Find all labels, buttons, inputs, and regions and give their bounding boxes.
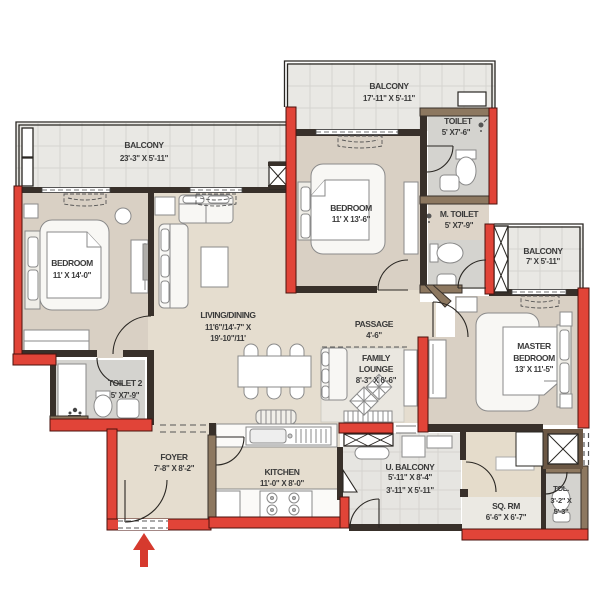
svg-text:TOL.: TOL. (553, 484, 569, 493)
svg-text:BALCONY: BALCONY (369, 81, 409, 91)
svg-text:4'-6": 4'-6" (366, 331, 382, 340)
svg-text:5' X7'-9": 5' X7'-9" (111, 391, 140, 400)
svg-text:5'-3": 5'-3" (554, 507, 569, 516)
svg-text:TOILET 2: TOILET 2 (108, 378, 143, 388)
svg-text:8'-3" X 6'-6": 8'-3" X 6'-6" (356, 376, 397, 385)
svg-text:SQ. RM: SQ. RM (492, 501, 520, 511)
svg-text:11'6"/14'-7" X: 11'6"/14'-7" X (205, 323, 252, 332)
svg-text:7'-8" X 8'-2": 7'-8" X 8'-2" (154, 464, 195, 473)
svg-text:U. BALCONY: U. BALCONY (386, 462, 436, 472)
svg-text:5'-11" X 8'-4": 5'-11" X 8'-4" (388, 473, 433, 482)
svg-text:PASSAGE: PASSAGE (355, 319, 394, 329)
svg-text:BEDROOM: BEDROOM (330, 203, 372, 213)
svg-text:BEDROOM: BEDROOM (51, 258, 93, 268)
svg-text:MASTER: MASTER (517, 341, 551, 351)
svg-text:11' X 14'-0": 11' X 14'-0" (53, 271, 92, 280)
svg-text:BALCONY: BALCONY (124, 140, 164, 150)
svg-text:FOYER: FOYER (160, 452, 188, 462)
svg-text:LIVING/DINING: LIVING/DINING (200, 310, 256, 320)
svg-text:BEDROOM: BEDROOM (513, 353, 555, 363)
svg-text:11'-0" X 8'-0": 11'-0" X 8'-0" (260, 479, 305, 488)
svg-text:FAMILY: FAMILY (362, 353, 391, 363)
svg-text:5' X7'-6": 5' X7'-6" (442, 128, 471, 137)
svg-text:23'-3" X 5'-11": 23'-3" X 5'-11" (120, 154, 169, 163)
svg-text:LOUNGE: LOUNGE (359, 364, 394, 374)
svg-text:3'-2" X: 3'-2" X (550, 496, 571, 505)
svg-text:BALCONY: BALCONY (523, 246, 563, 256)
svg-text:17'-11" X 5'-11": 17'-11" X 5'-11" (363, 94, 415, 103)
svg-text:6'-6" X 6'-7": 6'-6" X 6'-7" (486, 513, 527, 522)
svg-text:19'-10"/11': 19'-10"/11' (210, 334, 246, 343)
svg-text:3'-11" X 5'-11": 3'-11" X 5'-11" (386, 486, 434, 495)
svg-text:TOILET: TOILET (444, 116, 473, 126)
svg-text:5' X7'-9": 5' X7'-9" (445, 221, 474, 230)
svg-text:11' X 13'-6": 11' X 13'-6" (332, 215, 371, 224)
svg-text:7' X 5'-11": 7' X 5'-11" (526, 257, 561, 266)
svg-text:13' X 11'-5": 13' X 11'-5" (515, 365, 554, 374)
svg-text:M. TOILET: M. TOILET (440, 209, 479, 219)
svg-text:KITCHEN: KITCHEN (265, 467, 300, 477)
